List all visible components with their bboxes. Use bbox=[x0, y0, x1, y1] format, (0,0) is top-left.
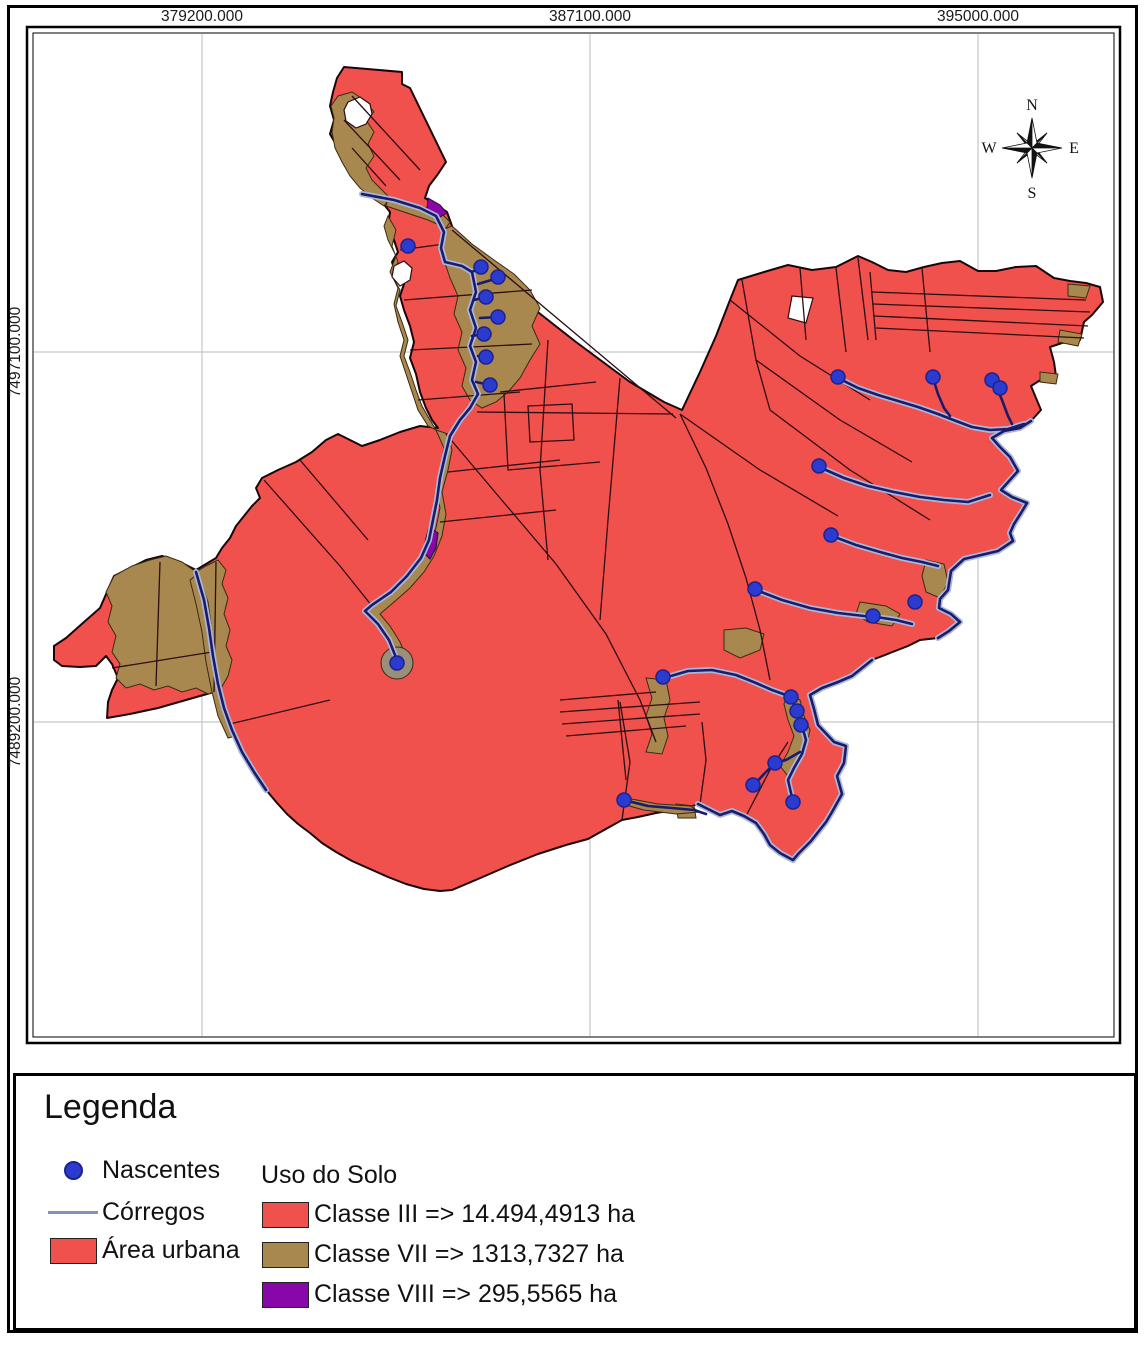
nascente-dot bbox=[908, 595, 922, 609]
area-urbana-swatch bbox=[50, 1238, 97, 1264]
classe-iii-swatch bbox=[262, 1202, 309, 1228]
nascente-dot bbox=[831, 370, 845, 384]
nascente-dot bbox=[491, 310, 505, 324]
municipality-classe-iii-polygon bbox=[54, 67, 1103, 891]
legend-item-label: Nascentes bbox=[102, 1156, 220, 1185]
nascente-dot bbox=[491, 270, 505, 284]
legend-item-nascentes: Nascentes bbox=[44, 1156, 220, 1185]
legend-item-classe-viii: Classe VIII => 295,5565 ha bbox=[256, 1280, 617, 1309]
nascente-dot bbox=[786, 795, 800, 809]
classe-viii-swatch bbox=[262, 1282, 309, 1308]
nascente-dot bbox=[746, 778, 760, 792]
nascente-dot bbox=[479, 290, 493, 304]
nascente-dot bbox=[617, 793, 631, 807]
legend-item-label: Classe VII => 1313,7327 ha bbox=[314, 1240, 624, 1269]
classe-vii-swatch bbox=[262, 1242, 309, 1268]
grid-label-top-1: 379200.000 bbox=[161, 8, 243, 25]
grid-label-top-2: 387100.000 bbox=[549, 8, 631, 25]
nascente-dot bbox=[812, 459, 826, 473]
nascente-dot bbox=[784, 690, 798, 704]
compass-w-label: W bbox=[981, 140, 997, 157]
legend-item-label: Córregos bbox=[102, 1198, 205, 1227]
grid-label-left-2: 7489200.000 bbox=[7, 676, 24, 767]
nascente-dot bbox=[866, 609, 880, 623]
legend-item-classe-iii: Classe III => 14.494,4913 ha bbox=[256, 1200, 635, 1229]
nascente-dot bbox=[993, 381, 1007, 395]
legend-item-label: Classe III => 14.494,4913 ha bbox=[314, 1200, 635, 1229]
compass-e-label: E bbox=[1069, 140, 1079, 157]
legend-item-area-urbana: Área urbana bbox=[44, 1236, 240, 1265]
legend-title: Legenda bbox=[44, 1088, 176, 1127]
nascente-dot bbox=[477, 327, 491, 341]
compass-n-label: N bbox=[1026, 97, 1038, 114]
nascente-dot bbox=[474, 260, 488, 274]
nascentes-dot-symbol bbox=[64, 1161, 83, 1180]
nascente-dot bbox=[390, 656, 404, 670]
nascente-dot bbox=[483, 378, 497, 392]
map-sheet: 379200.000 387100.000 395000.000 7497100… bbox=[0, 0, 1148, 1361]
legend-box: Legenda Nascentes Córregos Área urbana U… bbox=[13, 1073, 1137, 1331]
compass-s-label: S bbox=[1028, 185, 1037, 202]
map-canvas: 379200.000 387100.000 395000.000 7497100… bbox=[0, 0, 1148, 1070]
nascente-dot bbox=[479, 350, 493, 364]
legend-item-corregos: Córregos bbox=[44, 1198, 205, 1227]
nascente-dot bbox=[790, 704, 804, 718]
nascente-dot bbox=[794, 718, 808, 732]
grid-label-top-3: 395000.000 bbox=[937, 8, 1019, 25]
grid-label-left-1: 7497100.000 bbox=[7, 306, 24, 397]
nascente-dot bbox=[748, 582, 762, 596]
legend-item-classe-vii: Classe VII => 1313,7327 ha bbox=[256, 1240, 624, 1269]
uso-do-solo-title: Uso do Solo bbox=[261, 1161, 397, 1190]
corregos-line-symbol bbox=[48, 1211, 98, 1214]
legend-item-label: Classe VIII => 295,5565 ha bbox=[314, 1280, 617, 1309]
nascente-dot bbox=[401, 239, 415, 253]
compass-rose: N E S W bbox=[981, 97, 1078, 202]
nascente-dot bbox=[926, 370, 940, 384]
nascente-dot bbox=[656, 670, 670, 684]
nascente-dot bbox=[768, 756, 782, 770]
legend-item-label: Área urbana bbox=[102, 1236, 240, 1265]
nascente-dot bbox=[824, 528, 838, 542]
